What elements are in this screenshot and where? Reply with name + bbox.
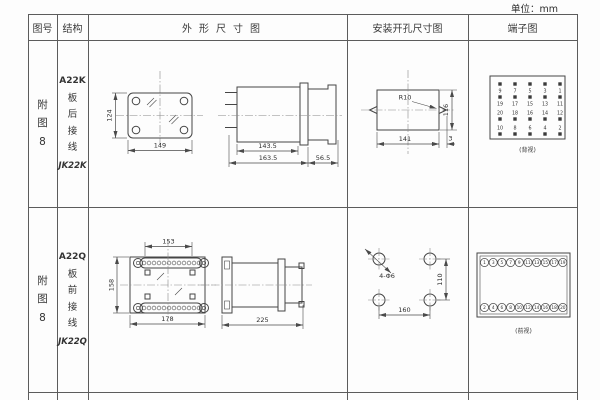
dim-cutout-width: 141	[399, 135, 411, 143]
svg-text:13: 13	[542, 102, 548, 108]
terminal-view-label-row1: (背视)	[519, 146, 536, 154]
wiring-row1: 板 后 接 线	[68, 91, 78, 156]
dim-holes-label: 4-Φ6	[379, 272, 395, 280]
terminal-diagram-jk22q: 1357911131517192468101214161820 (前视)	[468, 207, 577, 392]
dim-flange-depth: 56.5	[316, 154, 330, 162]
svg-text:1: 1	[558, 89, 561, 95]
fig-no-row1: 附 图 8	[28, 40, 57, 207]
svg-text:11: 11	[557, 102, 563, 108]
svg-text:7: 7	[509, 260, 512, 266]
dim-front-height: 124	[106, 109, 114, 121]
svg-text:14: 14	[534, 305, 540, 311]
svg-text:4: 4	[492, 305, 495, 311]
unit-note: 单位：mm	[511, 1, 558, 15]
dim-front-width: 149	[154, 142, 166, 150]
svg-text:20: 20	[497, 111, 503, 117]
terminal-grid-jk22k: 9753119171513112018161412108642	[497, 82, 563, 135]
dim-front-height-2: 158	[108, 279, 116, 291]
svg-text:9: 9	[498, 89, 501, 95]
svg-text:3: 3	[543, 89, 546, 95]
svg-text:3: 3	[492, 260, 495, 266]
svg-text:15: 15	[527, 102, 533, 108]
a22k-front-view: 124 149	[106, 71, 204, 154]
mounting-drawing-a22k: R10 141 3 116	[347, 40, 468, 207]
header-mounting: 安装开孔尺寸图	[347, 14, 468, 40]
svg-text:17: 17	[551, 260, 557, 266]
svg-text:16: 16	[543, 305, 549, 311]
svg-text:11: 11	[525, 260, 531, 266]
relay-type-jk22k: JK22K	[58, 161, 86, 171]
svg-text:9: 9	[518, 260, 521, 266]
front-hatch-marks	[157, 273, 182, 295]
svg-text:14: 14	[542, 111, 548, 117]
svg-text:6: 6	[528, 126, 531, 132]
dim-front-bottom-width: 178	[161, 315, 173, 323]
header-terminal: 端子图	[468, 14, 577, 40]
svg-text:7: 7	[513, 89, 516, 95]
terminal-view-label-row2: (前视)	[515, 327, 532, 335]
svg-text:4: 4	[543, 126, 546, 132]
dim-cutout-height: 116	[442, 104, 450, 116]
dim-body-length: 143.5	[258, 142, 277, 150]
svg-text:16: 16	[527, 111, 533, 117]
svg-text:13: 13	[534, 260, 540, 266]
outline-drawing-a22k: 124 149 143.5 163.5 56.5	[90, 40, 347, 207]
a22q-front-view: 153 15	[108, 238, 217, 329]
svg-text:12: 12	[525, 305, 531, 311]
svg-text:2: 2	[483, 305, 486, 311]
table-row-divider-2	[28, 392, 577, 393]
svg-text:2: 2	[558, 126, 561, 132]
svg-text:19: 19	[560, 260, 566, 266]
model-a22k: A22K	[59, 76, 85, 86]
svg-text:12: 12	[557, 111, 563, 117]
col-divider-structure	[88, 14, 89, 400]
relay-type-jk22q: JK22Q	[58, 337, 87, 347]
dim-hole-spacing-v: 110	[436, 273, 444, 285]
table-border-right	[577, 14, 578, 400]
svg-text:19: 19	[497, 102, 503, 108]
svg-text:5: 5	[528, 89, 531, 95]
rear-terminal-pins	[225, 93, 237, 128]
manual-page: 单位：mm 图号 结构 外形尺寸图 安装开孔尺寸图 端子图 附 图 8 A22K…	[0, 0, 600, 400]
dim-corner-radius: R10	[399, 94, 412, 102]
outline-drawing-a22q: 153 15	[90, 207, 347, 392]
dim-hole-spacing-h: 160	[398, 306, 410, 314]
terminal-grid-jk22q: 1357911131517192468101214161820	[480, 258, 567, 311]
mounting-drawing-a22q: 4-Φ6 110 160	[347, 207, 468, 392]
header-fig-no: 图号	[28, 14, 57, 40]
dim-front-top-width: 153	[162, 238, 174, 246]
svg-text:6: 6	[501, 305, 504, 311]
glass-hatch-marks	[147, 98, 179, 124]
terminal-diagram-jk22k: 9753119171513112018161412108642 (背视)	[468, 40, 577, 207]
wiring-row2: 板 前 接 线	[68, 267, 78, 332]
corner-screws	[145, 270, 195, 299]
header-outline: 外形尺寸图	[88, 14, 354, 40]
svg-text:5: 5	[501, 260, 504, 266]
svg-text:18: 18	[551, 305, 557, 311]
structure-row1: A22K 板 后 接 线 JK22K	[57, 40, 88, 207]
fig-no-row2: 附 图 8	[28, 207, 57, 392]
svg-text:18: 18	[512, 111, 518, 117]
svg-text:20: 20	[560, 305, 566, 311]
dim-notch-depth: 3	[448, 135, 452, 143]
dim-total-depth: 225	[256, 316, 268, 324]
svg-text:10: 10	[517, 305, 523, 311]
svg-text:1: 1	[483, 260, 486, 266]
svg-text:15: 15	[543, 260, 549, 266]
svg-text:8: 8	[509, 305, 512, 311]
svg-text:17: 17	[512, 102, 518, 108]
a22k-side-view: 143.5 163.5 56.5	[218, 83, 342, 167]
a22q-side-view: 225	[198, 257, 312, 329]
structure-row2: A22Q 板 前 接 线 JK22Q	[57, 207, 88, 392]
header-structure: 结构	[57, 14, 88, 40]
model-a22q: A22Q	[59, 252, 86, 262]
dim-total-length: 163.5	[259, 154, 278, 162]
svg-text:8: 8	[513, 126, 516, 132]
svg-text:10: 10	[497, 126, 503, 132]
